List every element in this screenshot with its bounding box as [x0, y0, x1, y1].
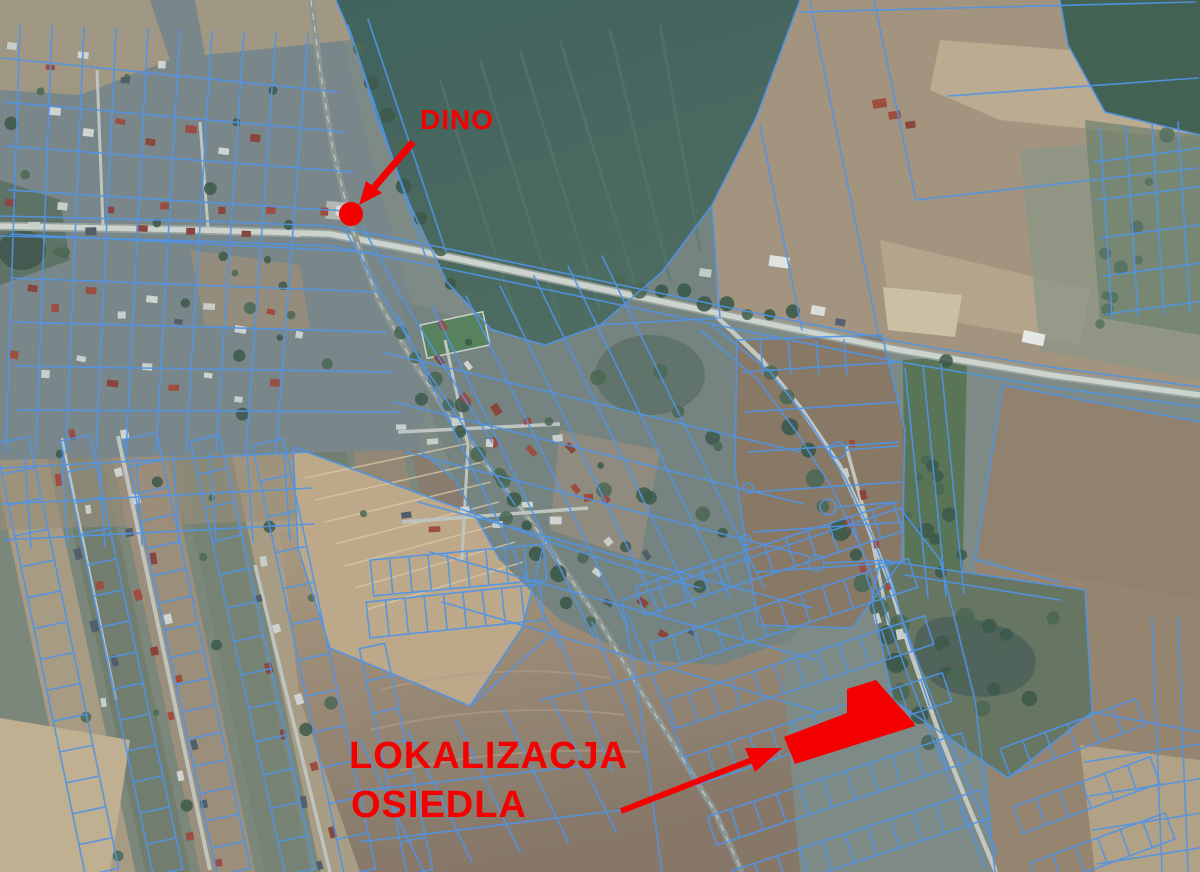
aerial-map: DINO LOKALIZACJA OSIEDLA [0, 0, 1200, 872]
site-label-line1: LOKALIZACJA [349, 735, 628, 777]
dino-label: DINO [420, 104, 494, 135]
site-label-line2: OSIEDLA [351, 784, 527, 826]
map-canvas: DINO LOKALIZACJA OSIEDLA [0, 0, 1200, 872]
dino-location-dot [339, 202, 363, 226]
